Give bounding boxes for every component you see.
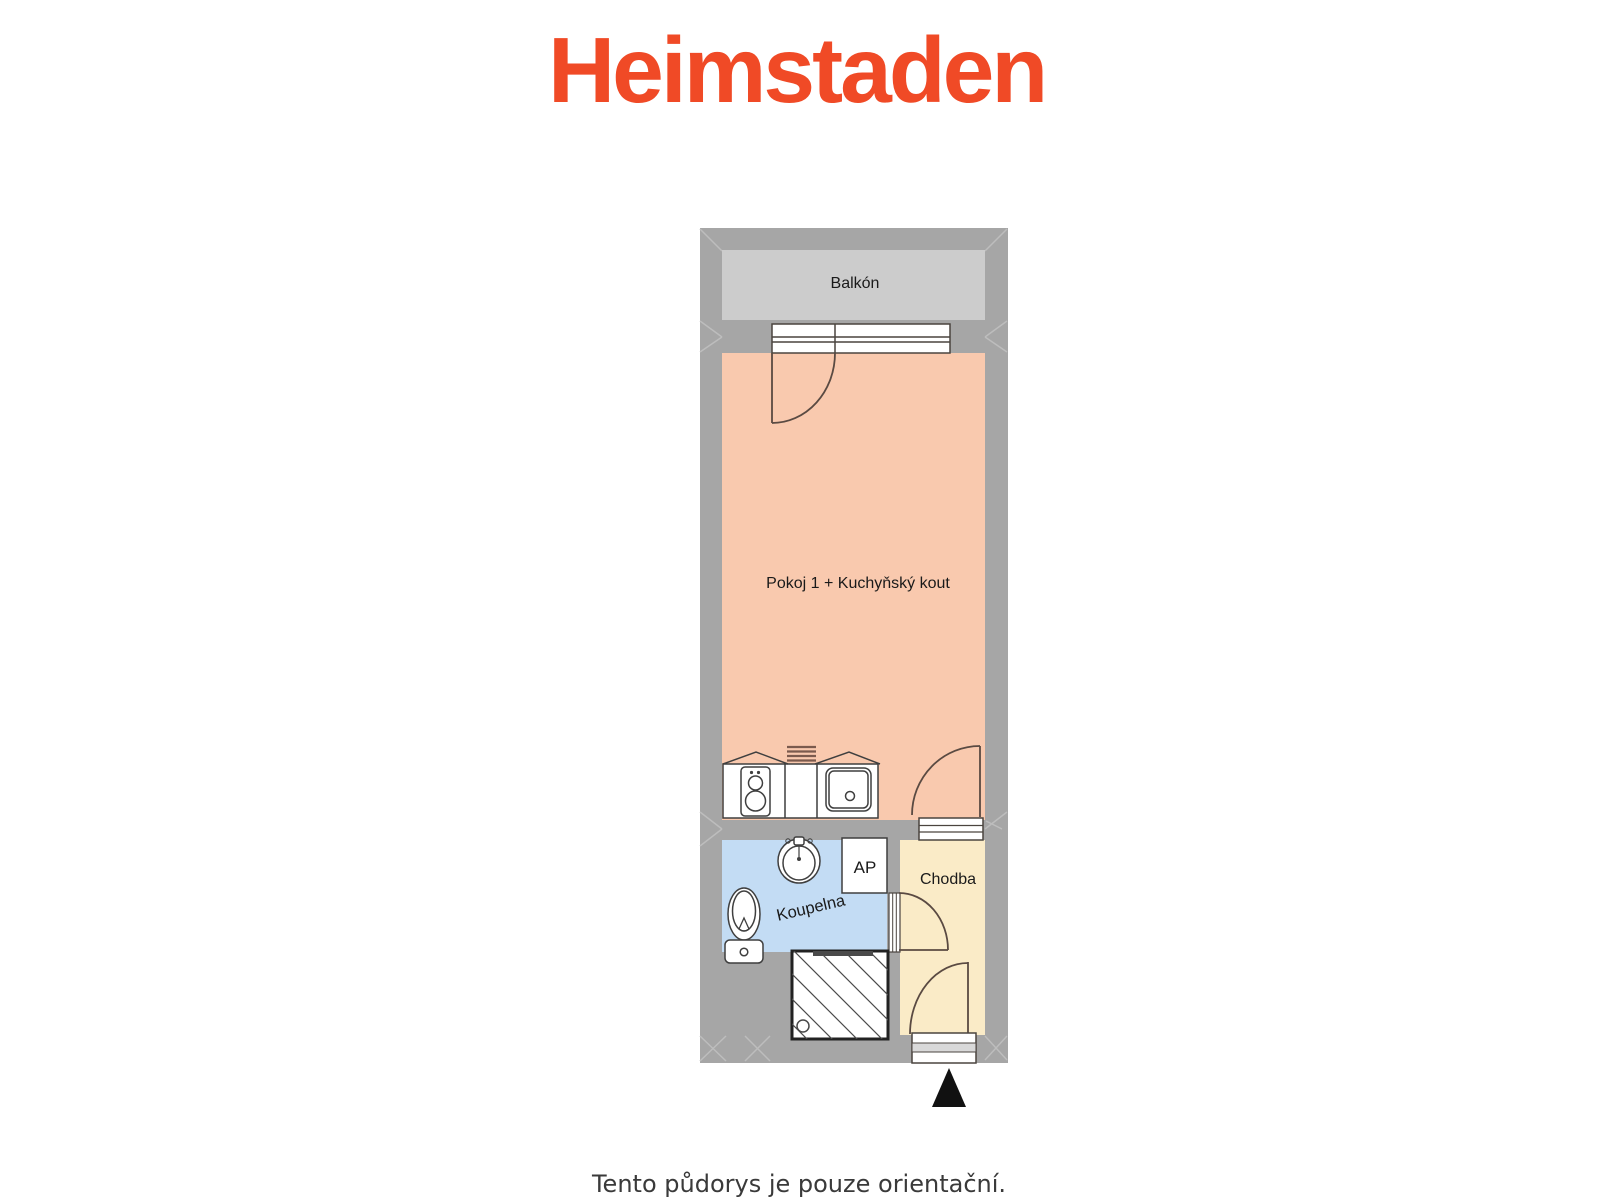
floor-plan: Balkón Pokoj 1 + Kuchyňský kout Koupelna…	[680, 220, 1025, 1120]
label-balkon: Balkón	[831, 275, 880, 292]
label-pokoj: Pokoj 1 + Kuchyňský kout	[766, 575, 950, 592]
kitchen-sink-icon	[826, 768, 871, 811]
balcony-window-icon	[772, 324, 950, 353]
heimstaden-logo: Heimstaden	[548, 24, 1045, 117]
label-ap: AP	[854, 858, 877, 877]
room-chodba	[900, 840, 985, 1035]
toilet-icon	[725, 888, 763, 963]
entrance-arrow-icon	[932, 1068, 966, 1107]
disclaimer-text: Tento půdorys je pouze orientační.	[592, 1170, 1006, 1198]
page: Heimstaden	[0, 0, 1600, 1200]
label-chodba: Chodba	[920, 871, 976, 888]
washing-machine-icon	[741, 767, 770, 816]
